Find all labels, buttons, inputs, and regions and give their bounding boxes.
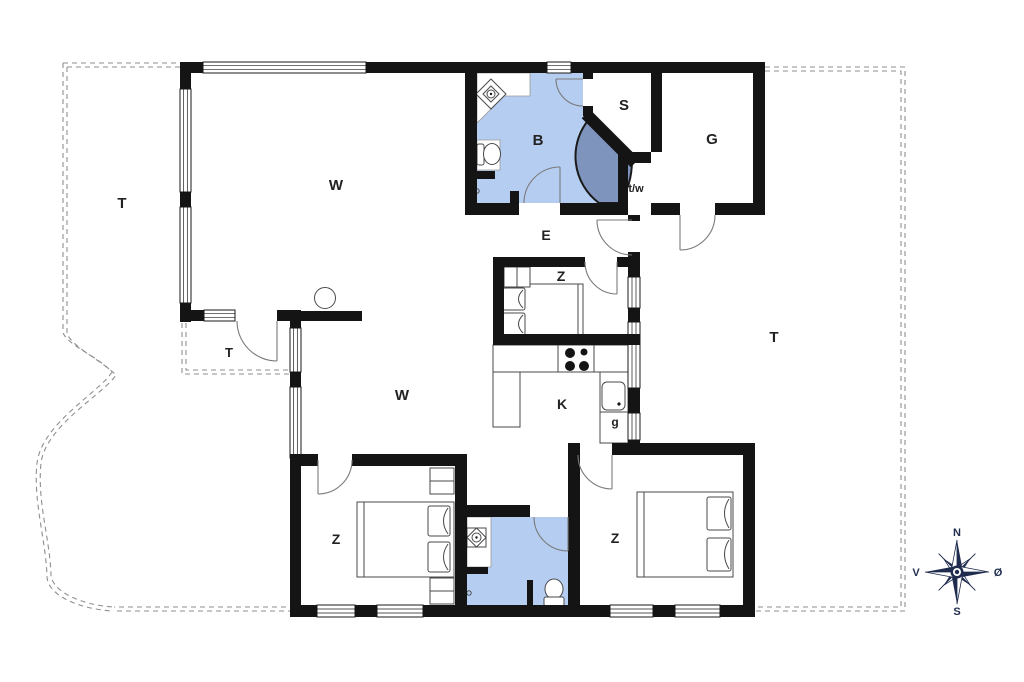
floor-plan-svg: TWBSGt/wEZTTWKgZZNSVØ	[0, 0, 1024, 682]
wall	[180, 310, 204, 321]
door-garage-door	[680, 215, 715, 250]
door-main-entrance	[597, 220, 632, 255]
door-entry-to-bedroom	[585, 262, 617, 294]
door-swing-arc	[680, 215, 715, 250]
room-label-bath-top: B	[533, 132, 544, 149]
window	[675, 605, 720, 617]
wall	[290, 372, 301, 387]
shower-top-dot	[490, 93, 492, 95]
room-label-living-upper: W	[329, 177, 344, 194]
wall	[715, 203, 765, 215]
compass-letter-east: Ø	[994, 567, 1003, 579]
room-label-utility: t/w	[628, 183, 644, 195]
sink-drain	[617, 402, 620, 405]
window	[290, 387, 301, 458]
wall	[651, 73, 662, 152]
room-label-cabinet: g	[611, 415, 618, 429]
burner	[565, 361, 575, 371]
wall	[423, 605, 610, 617]
toilet-top-bowl	[484, 144, 501, 165]
room-label-bedroom-mid: Z	[557, 268, 566, 284]
compass-rose: NSVØ	[912, 527, 1002, 618]
window	[180, 207, 191, 303]
window	[203, 62, 366, 73]
burner	[579, 361, 589, 371]
toilet-bottom-tank	[544, 597, 564, 606]
wall	[467, 505, 530, 517]
window	[628, 322, 640, 388]
wall	[651, 203, 680, 215]
burner	[565, 348, 575, 358]
compass-letter-west: V	[912, 567, 920, 579]
boundary-dash-line	[182, 323, 290, 374]
window	[547, 62, 571, 73]
wall	[366, 62, 547, 73]
wall	[568, 443, 580, 617]
wall	[560, 203, 618, 215]
wall	[352, 454, 455, 466]
wall	[628, 308, 640, 322]
door-swing-arc	[578, 455, 612, 489]
room-label-bedroom-east: Z	[611, 530, 620, 546]
wall	[477, 171, 495, 179]
wall	[300, 311, 362, 321]
window	[204, 310, 235, 321]
wall	[465, 203, 513, 215]
door-swing-arc	[585, 262, 617, 294]
sink	[602, 382, 625, 410]
wall	[743, 443, 755, 617]
door-swing-arc	[318, 460, 352, 494]
wall	[617, 257, 628, 267]
wall	[527, 580, 533, 606]
wall	[628, 252, 640, 277]
wall	[653, 605, 675, 617]
door-living-to-terrace	[237, 321, 277, 361]
wall	[180, 62, 191, 89]
door-swing-arc	[597, 220, 632, 255]
wall	[455, 454, 467, 617]
wall	[290, 605, 317, 617]
room-label-bedroom-sw: Z	[332, 531, 341, 547]
room-label-kitchen: K	[557, 396, 567, 412]
window	[628, 413, 640, 440]
window	[180, 89, 191, 192]
wall	[180, 192, 191, 207]
compass-hub-dot	[955, 570, 959, 574]
toilet-top-tank	[477, 144, 484, 165]
door-bedroom-east-door	[578, 455, 612, 489]
wall	[465, 73, 477, 203]
compass-letter-north: N	[953, 527, 961, 539]
room-label-sauna: S	[619, 97, 629, 114]
wall	[290, 454, 318, 466]
wall	[493, 257, 504, 345]
toilet-bottom-bowl	[545, 579, 563, 599]
room-label-garage: G	[706, 131, 718, 148]
window	[610, 605, 653, 617]
door-swing-arc	[237, 321, 277, 361]
wall	[510, 191, 519, 215]
room-label-terrace-west: T	[117, 195, 126, 212]
window	[628, 277, 640, 308]
burner	[581, 349, 588, 356]
room-label-terrace-small: T	[225, 345, 233, 360]
window	[290, 328, 301, 372]
floor-plan-page: TWBSGt/wEZTTWKgZZNSVØ	[0, 0, 1024, 682]
room-label-terrace-east: T	[769, 329, 778, 346]
compass-letter-south: S	[953, 606, 960, 618]
wall	[571, 62, 765, 73]
wood-stove	[315, 288, 336, 309]
wall	[493, 257, 585, 267]
wall	[583, 73, 593, 79]
wall	[753, 73, 765, 203]
door-bedroom-sw-door	[318, 460, 352, 494]
wall	[628, 440, 640, 455]
wall	[493, 334, 640, 345]
window	[377, 605, 423, 617]
wall	[628, 388, 640, 413]
room-label-entry: E	[541, 227, 550, 243]
window	[317, 605, 355, 617]
wall	[467, 567, 488, 574]
wall	[290, 458, 301, 617]
kitchen-counter-left	[493, 372, 520, 427]
wall	[355, 605, 377, 617]
shower-bottom-dot	[475, 536, 477, 538]
wall	[290, 310, 301, 328]
room-label-living-lower: W	[395, 387, 410, 404]
